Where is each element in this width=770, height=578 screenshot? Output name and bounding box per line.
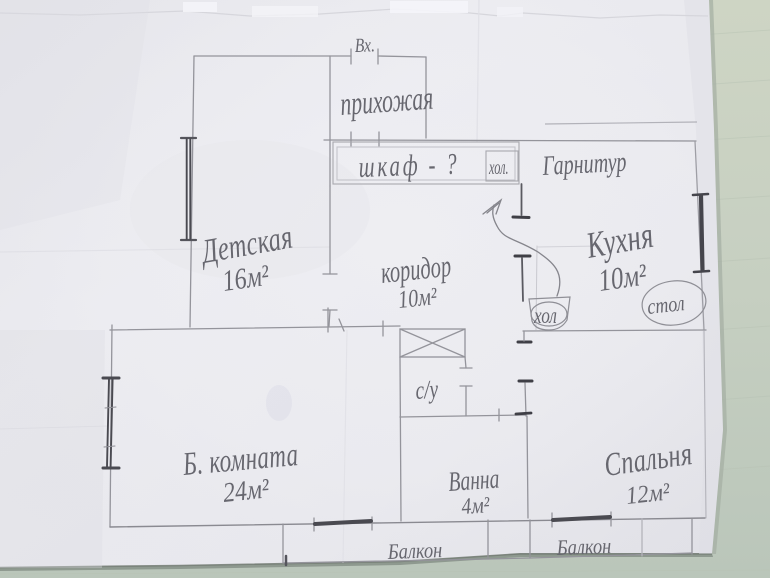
- svg-text:4м²: 4м²: [461, 492, 491, 520]
- svg-text:Балкон: Балкон: [386, 539, 442, 565]
- svg-text:с/у: с/у: [414, 375, 439, 405]
- svg-text:24м²: 24м²: [221, 472, 271, 508]
- svg-text:стол: стол: [646, 292, 686, 320]
- svg-text:хол.: хол.: [488, 156, 508, 179]
- svg-text:Балкон: Балкон: [555, 535, 611, 561]
- svg-text:хол: хол: [533, 304, 557, 329]
- svg-text:Гарнитур: Гарнитур: [541, 147, 627, 182]
- svg-text:шкаф - ?: шкаф - ?: [358, 147, 460, 184]
- svg-text:Вх.: Вх.: [354, 33, 375, 56]
- svg-text:12м²: 12м²: [625, 478, 672, 510]
- svg-text:10м²: 10м²: [596, 258, 649, 299]
- svg-text:16м²: 16м²: [220, 258, 271, 297]
- svg-text:прихожая: прихожая: [339, 80, 434, 123]
- svg-text:10м²: 10м²: [397, 282, 439, 314]
